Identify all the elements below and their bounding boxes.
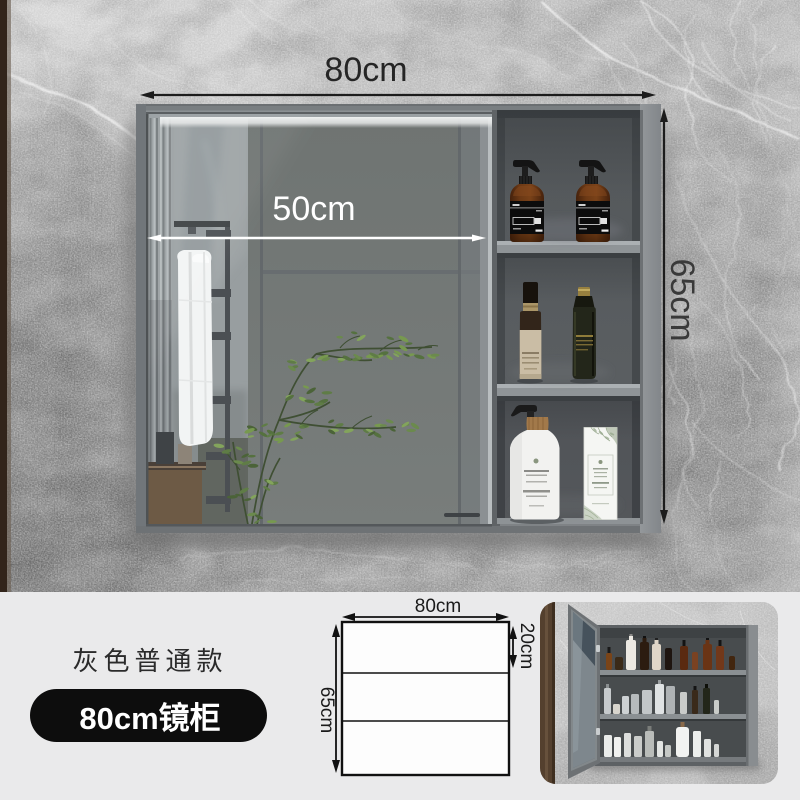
svg-text:80cm: 80cm xyxy=(415,596,461,617)
svg-text:50cm: 50cm xyxy=(272,190,355,228)
svg-text:20cm: 20cm xyxy=(516,623,537,669)
svg-text:65cm: 65cm xyxy=(663,258,701,341)
svg-text:80cm: 80cm xyxy=(324,51,407,89)
svg-text:65cm: 65cm xyxy=(316,687,337,733)
svg-text:灰色普通款: 灰色普通款 xyxy=(72,646,227,676)
svg-text:80cm镜柜: 80cm镜柜 xyxy=(79,701,220,736)
